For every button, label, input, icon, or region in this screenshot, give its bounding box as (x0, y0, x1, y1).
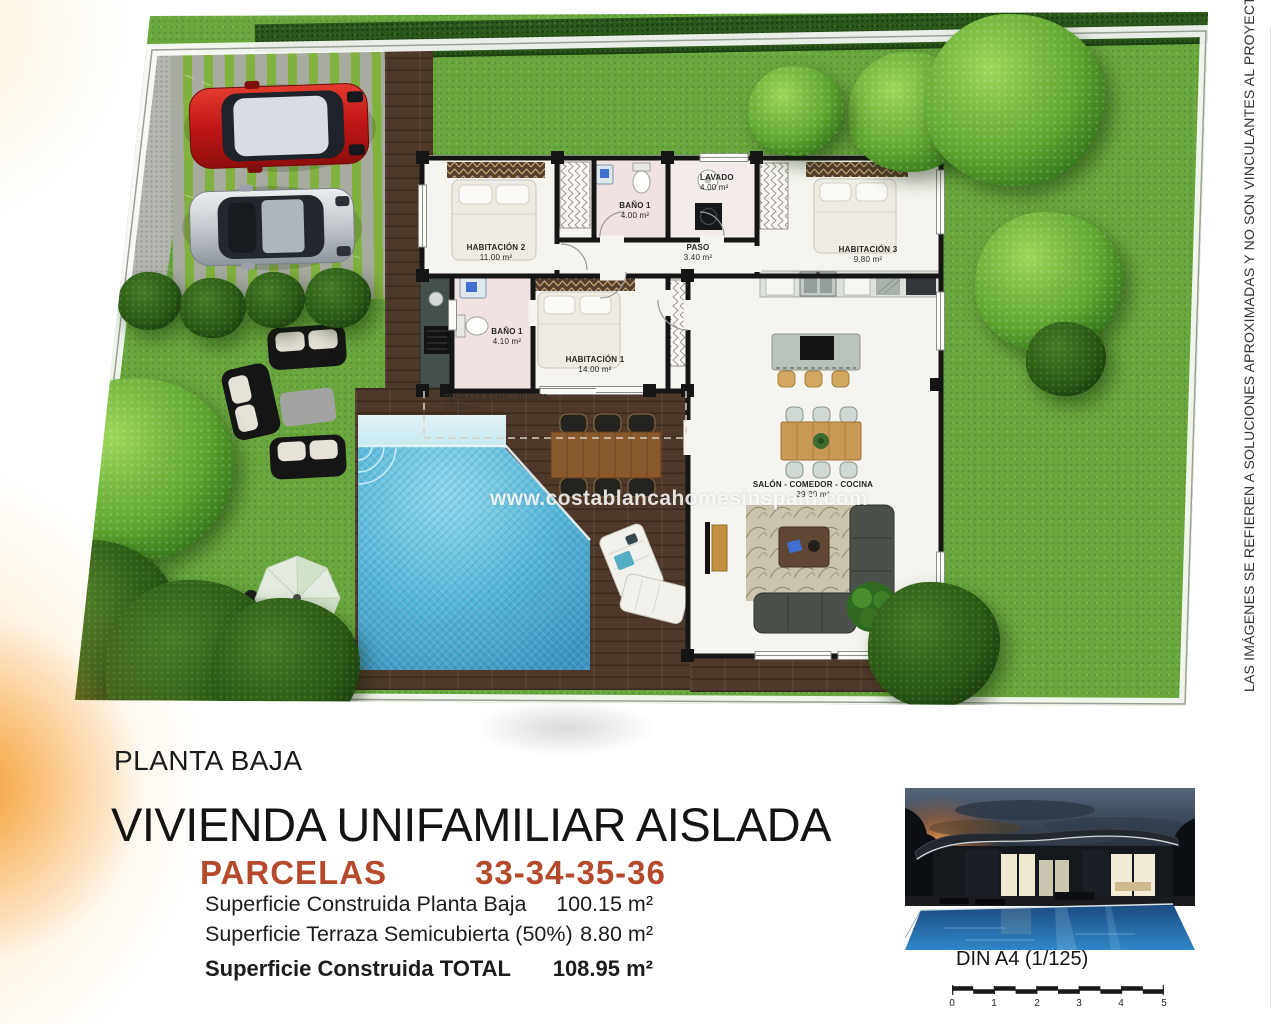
room-label-habitacion3: HABITACIÓN 3 9.80 m² (816, 245, 920, 266)
deck-dining-set (551, 414, 661, 497)
bush (180, 278, 246, 338)
floor-title: PLANTA BAJA (114, 745, 303, 777)
kitchen-island (772, 334, 860, 387)
tree (44, 378, 234, 560)
scale-tick: 0 (946, 998, 958, 1009)
room-label-habitacion2: HABITACIÓN 2 11.00 m² (448, 243, 544, 264)
tree (925, 14, 1105, 186)
tree (212, 598, 360, 738)
scale-tick: 4 (1115, 998, 1127, 1009)
page-edge-line (1270, 28, 1271, 1008)
table-row: Superficie Terraza Semicubierta (50%) 8.… (205, 922, 653, 947)
table-row-total: Superficie Construida TOTAL 108.95 m² (205, 956, 653, 982)
bush (305, 268, 371, 328)
room-label-terraza: TERRAZA SEMICUBIERTA 17.60 m² (444, 393, 574, 414)
scale-bar (952, 982, 1164, 1003)
villa-night-render (905, 788, 1195, 950)
bed-habitacion3 (806, 162, 908, 253)
outdoor-kitchen (420, 276, 454, 388)
silver-car (189, 182, 355, 271)
table-row: Superficie Construida Planta Baja 100.15… (205, 892, 653, 917)
dining-table (781, 407, 861, 478)
closet-habitacion2 (560, 162, 590, 228)
disclaimer-text: LAS IMÁGENES SE REFIEREN A SOLUCIONES AP… (1241, 0, 1257, 692)
tree (868, 582, 1000, 708)
scale-tick: 3 (1073, 998, 1085, 1009)
coffee-table (779, 527, 829, 567)
bush (245, 272, 305, 328)
room-label-bano1-top: BAÑO 1 4.00 m² (600, 201, 670, 222)
scale-tick: 2 (1031, 998, 1043, 1009)
tv-unit (705, 522, 727, 574)
scale-tick: 5 (1158, 998, 1170, 1009)
sun-lounger-2 (619, 573, 690, 625)
parcels-numbers: 33-34-35-36 (475, 854, 666, 892)
parcels-line: PARCELAS 33-34-35-36 (200, 854, 666, 892)
page-title: VIVIENDA UNIFAMILIAR AISLADA (111, 797, 831, 852)
scale-label: DIN A4 (1/125) (956, 948, 1088, 971)
tree (748, 66, 844, 156)
room-label-habitacion1: HABITACIÓN 1 14.00 m² (540, 355, 650, 376)
red-car (188, 77, 369, 175)
room-label-paso: PASO 3.40 m² (664, 243, 732, 264)
watermark: www.costablancahomesinspain.com (490, 487, 868, 511)
areas-table: Superficie Construida Planta Baja 100.15… (205, 892, 653, 987)
room-label-bano1-mid: BAÑO 1 4.10 m² (476, 327, 538, 348)
closet-habitacion3 (760, 163, 788, 229)
garden-sofa-set (219, 323, 347, 480)
room-label-lavado: LAVADO 4.00 m² (700, 173, 756, 194)
tree (1026, 322, 1106, 396)
bush (118, 272, 182, 330)
parcels-label: PARCELAS (200, 854, 387, 892)
scale-tick: 1 (988, 998, 1000, 1009)
